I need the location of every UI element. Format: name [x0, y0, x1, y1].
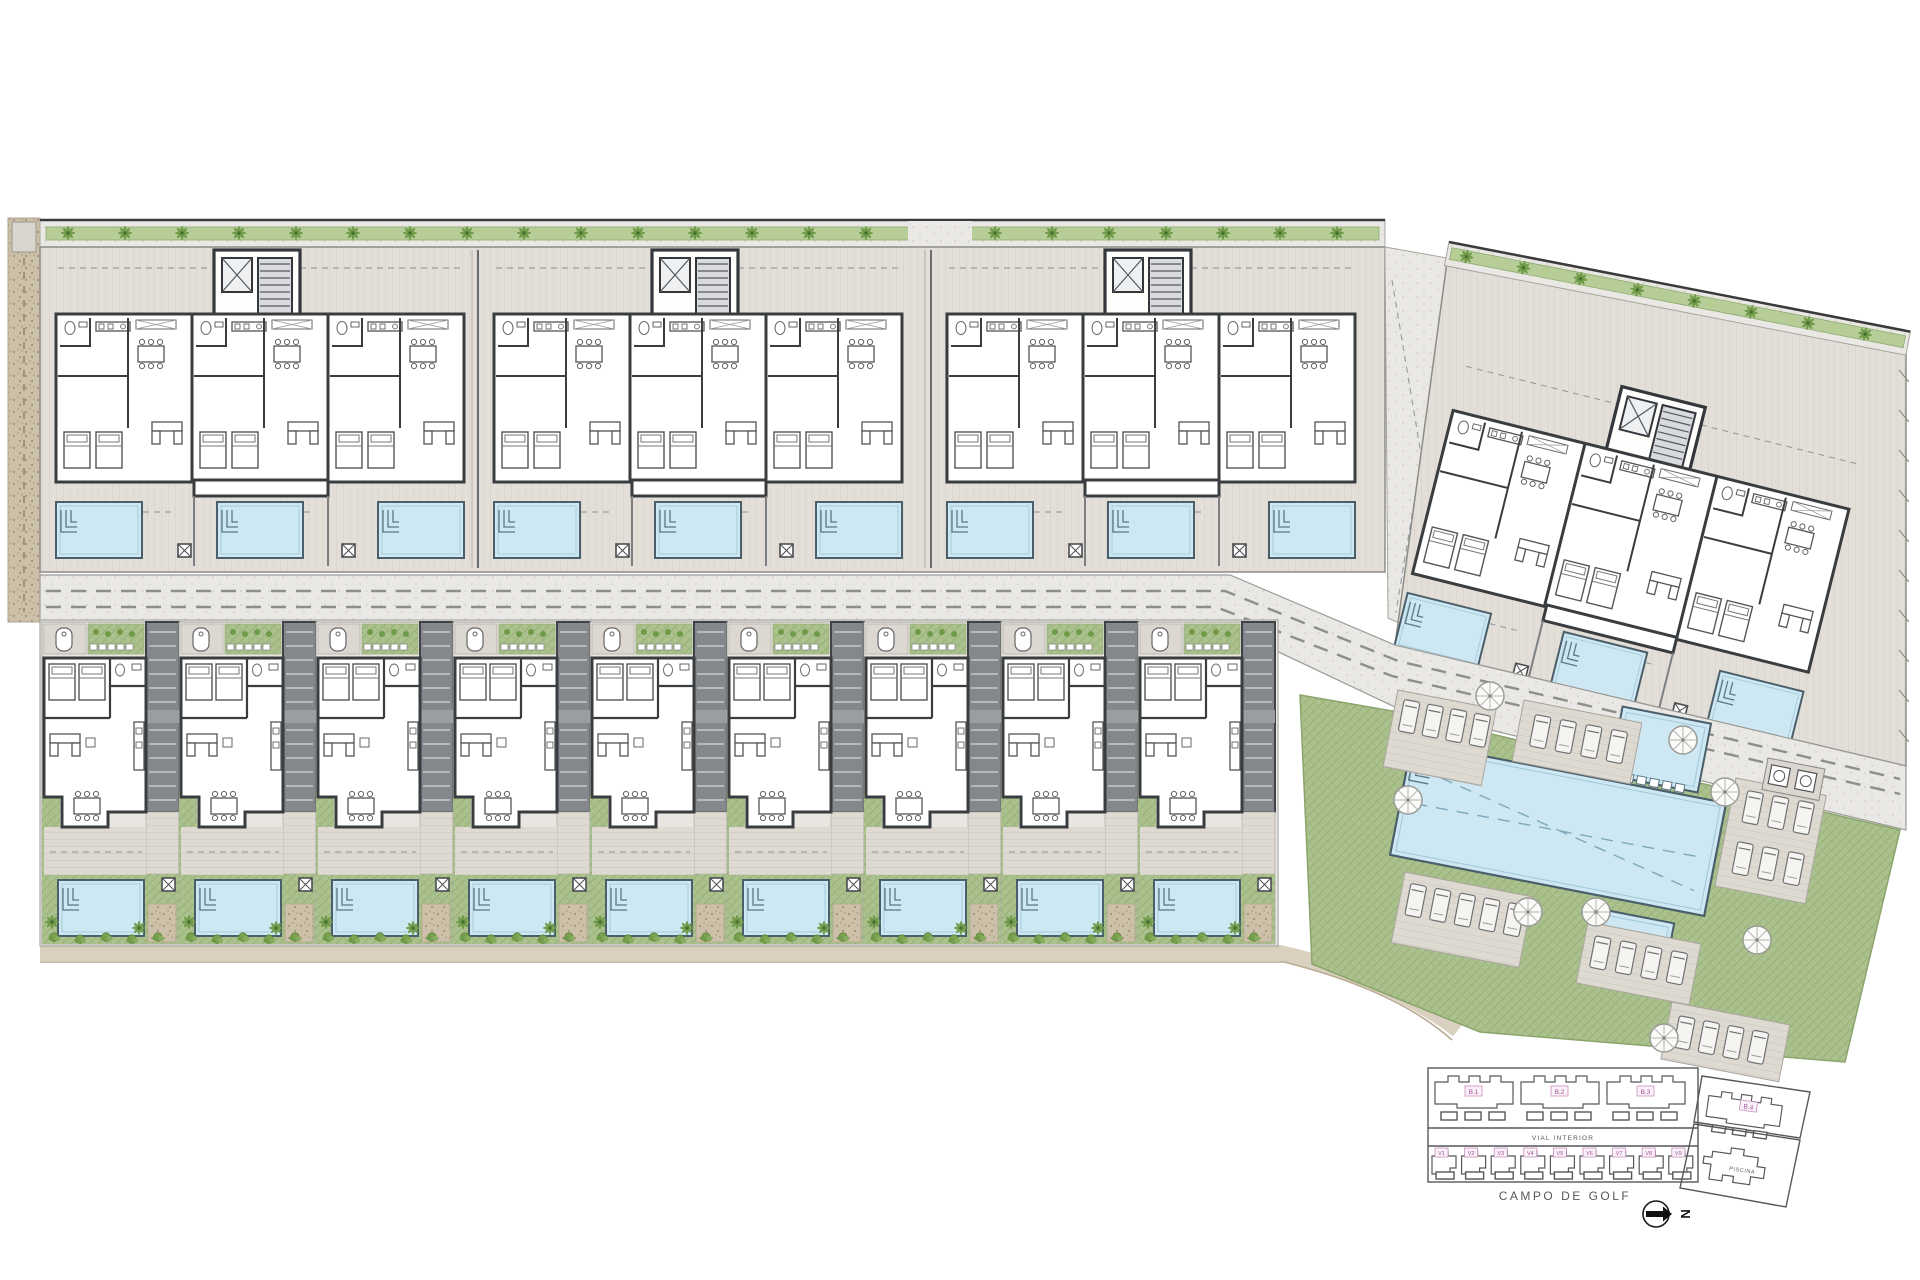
key-plan-label-v5: V5	[1557, 1151, 1564, 1157]
villa-v6	[727, 622, 864, 944]
key-plan-building-b2: B.2	[1521, 1076, 1599, 1108]
key-plan-building-b3: B.3	[1607, 1076, 1685, 1108]
villa-row	[40, 620, 1278, 946]
villa-v9	[1138, 622, 1275, 944]
villa-v2	[179, 622, 316, 944]
key-plan-label-v8: V8	[1645, 1151, 1652, 1157]
key-plan-villa-pools	[1436, 1172, 1691, 1179]
key-plan-label-v7: V7	[1616, 1151, 1623, 1157]
key-plan-label-b4: B.4	[1743, 1103, 1754, 1111]
golf-course-label: CAMPO DE GOLF	[1499, 1189, 1632, 1203]
villa-v3	[316, 622, 453, 944]
villa-v7	[864, 622, 1001, 944]
key-plan-label-b1: B.1	[1469, 1089, 1479, 1096]
apartment-zone	[40, 247, 1385, 572]
key-plan-label-v1: V1	[1438, 1151, 1445, 1157]
villa-v1	[42, 622, 179, 944]
key-plan-label-v6: V6	[1586, 1151, 1593, 1157]
villa-v5	[590, 622, 727, 944]
key-plan-label-b3: B.3	[1641, 1089, 1651, 1096]
key-plan-label-v9: V9	[1675, 1151, 1682, 1157]
key-plan-building-pools	[1441, 1112, 1677, 1120]
key-plan-road-label: VIAL INTERIOR	[1532, 1135, 1594, 1142]
site-plan-drawing: B.1 B.2 B.3 VIAL INTERIOR V1 V2 V3 V4 V5…	[0, 0, 1920, 1280]
villa-v4	[453, 622, 590, 944]
key-plan-label-b2: B.2	[1555, 1089, 1565, 1096]
key-plan-label-v3: V3	[1497, 1151, 1504, 1157]
site-plan-page: B.1 B.2 B.3 VIAL INTERIOR V1 V2 V3 V4 V5…	[0, 0, 1920, 1280]
key-plan: B.1 B.2 B.3 VIAL INTERIOR V1 V2 V3 V4 V5…	[1428, 1068, 1810, 1227]
north-arrow-icon: N	[1643, 1201, 1693, 1227]
north-letter: N	[1678, 1209, 1693, 1218]
villa-v8	[1001, 622, 1138, 944]
top-hedge-row	[40, 220, 1385, 247]
golf-boundary-path	[40, 953, 1458, 1040]
key-plan-b4-parcel: B.4	[1694, 1076, 1810, 1141]
key-plan-label-v2: V2	[1468, 1151, 1475, 1157]
key-plan-label-v4: V4	[1527, 1151, 1534, 1157]
left-access-path	[8, 218, 40, 622]
key-plan-building-b1: B.1	[1435, 1076, 1513, 1108]
